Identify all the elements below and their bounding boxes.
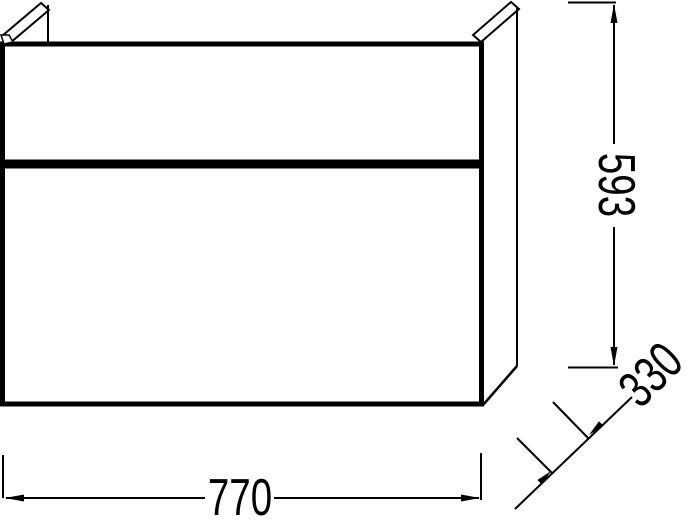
right-panel-top-edge — [473, 2, 519, 42]
width-dimension-label: 770 — [208, 472, 272, 524]
drawing-canvas: 770 593 330 — [0, 0, 698, 530]
height-arrow-top — [611, 4, 618, 23]
depth-arrow-back — [589, 421, 604, 435]
cabinet-front-panel — [1, 44, 482, 404]
width-arrow-left — [5, 495, 24, 502]
height-dimension-label: 593 — [590, 153, 642, 217]
depth-dimension-lines — [515, 397, 632, 509]
left-side-panel — [1, 3, 49, 44]
width-arrow-right — [461, 495, 480, 502]
depth-witness-front — [517, 438, 552, 473]
right-panel-bottom-edge — [483, 366, 517, 405]
cabinet-front-outline — [3, 44, 482, 404]
depth-witness-back — [553, 402, 589, 439]
height-arrow-bottom — [611, 347, 618, 366]
cabinet-line-art — [0, 0, 698, 530]
